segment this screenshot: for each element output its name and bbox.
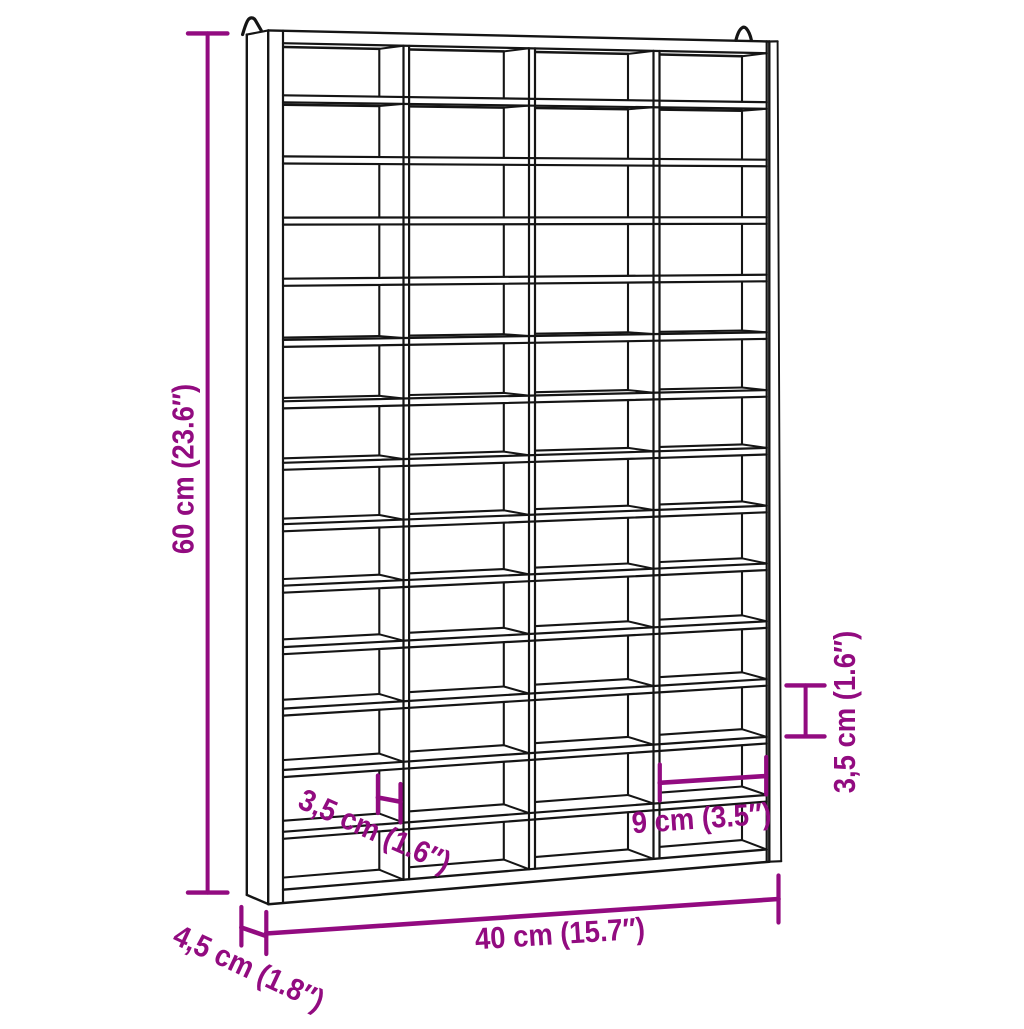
svg-text:3,5 cm (1.6″): 3,5 cm (1.6″) — [293, 783, 455, 880]
svg-text:4,5 cm (1.8″): 4,5 cm (1.8″) — [168, 919, 330, 1018]
svg-text:60 cm (23.6″): 60 cm (23.6″) — [167, 384, 201, 554]
svg-text:3,5 cm (1.6″): 3,5 cm (1.6″) — [829, 631, 863, 794]
